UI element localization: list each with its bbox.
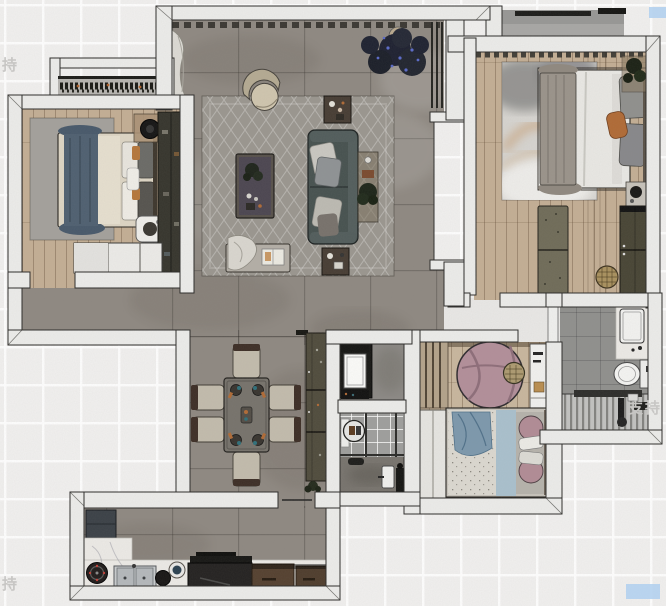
watermark-right: 支持 xyxy=(627,399,662,417)
watermark-top-left: 支持 xyxy=(0,56,19,74)
noise-overlay xyxy=(0,0,666,606)
highlight-artifact-top-right xyxy=(649,7,666,18)
highlight-artifact-bottom-right xyxy=(626,584,660,599)
floor-plan-stage: 支持 支持 支持 xyxy=(0,0,666,606)
watermark-bottom-left: 支持 xyxy=(0,575,19,593)
floor-plan-canvas[interactable]: 支持 支持 支持 xyxy=(0,0,666,606)
